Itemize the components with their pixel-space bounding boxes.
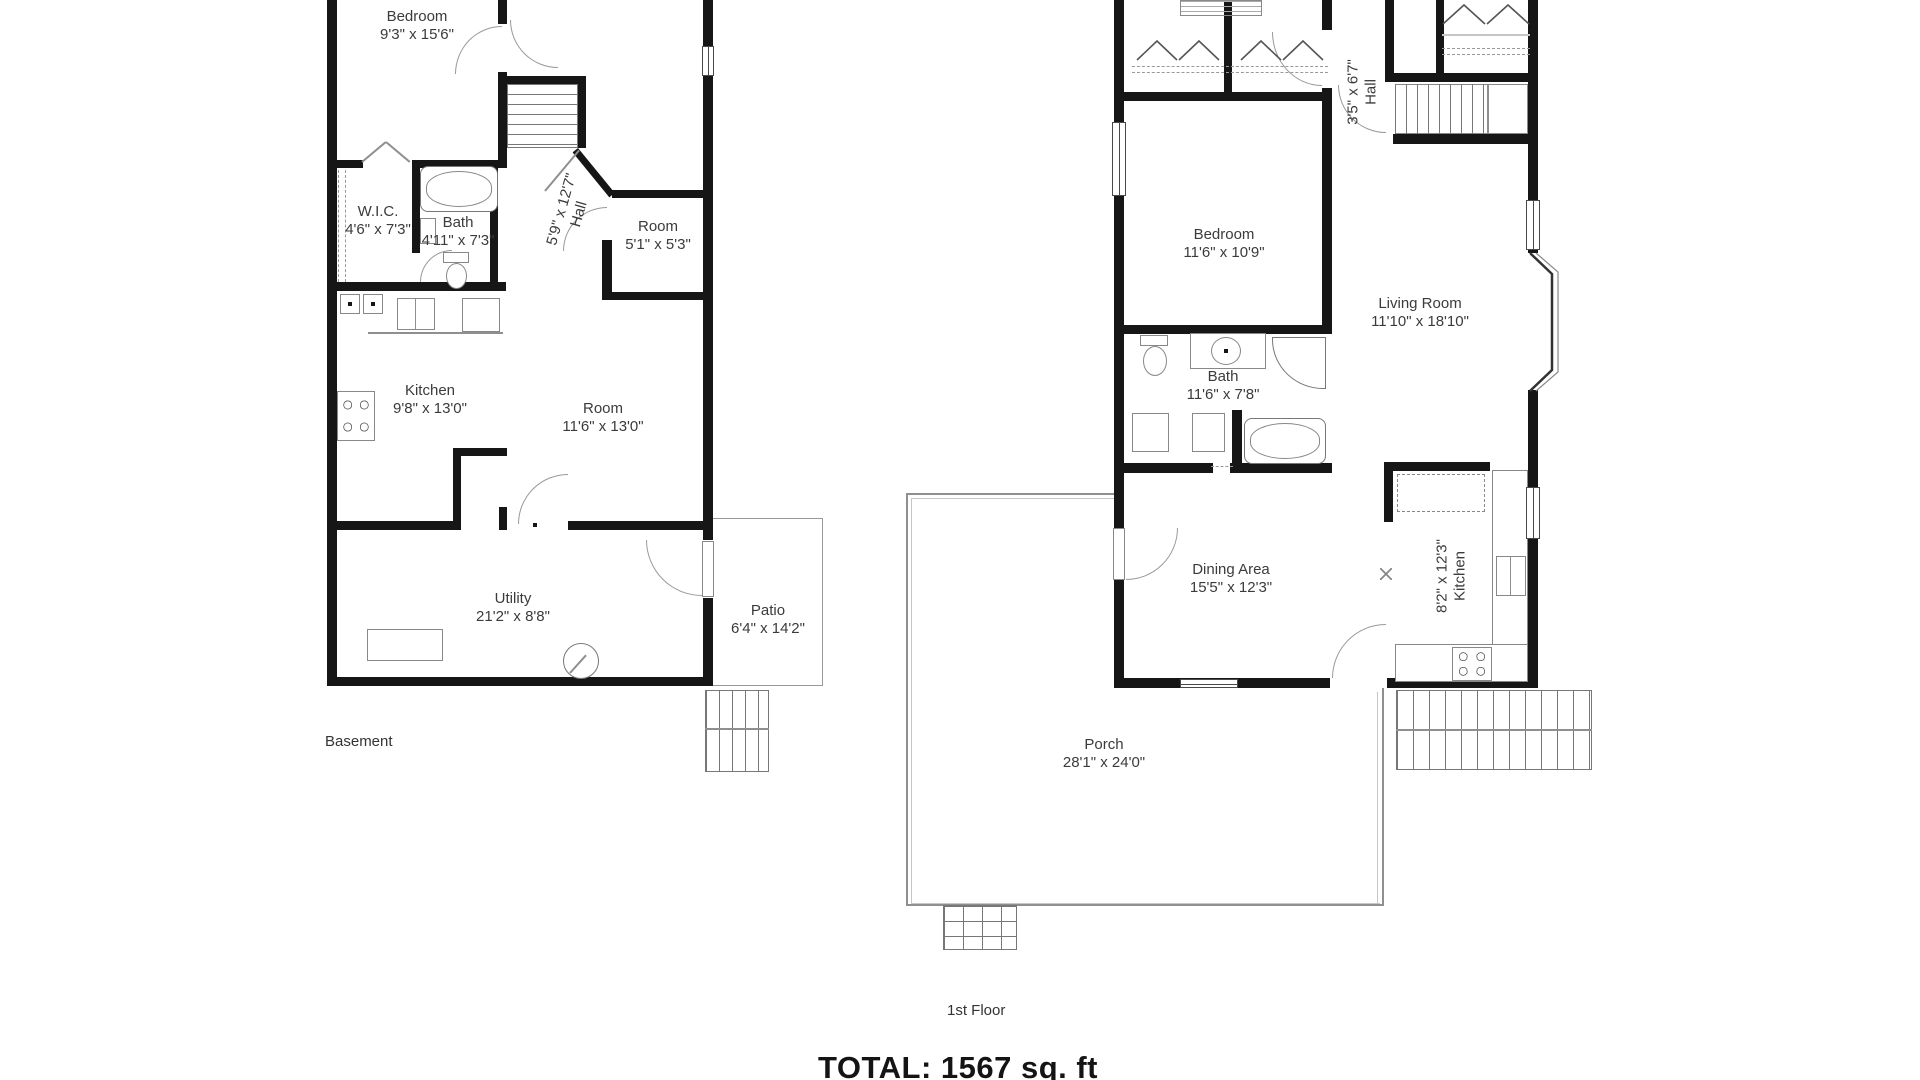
wall: [1114, 580, 1124, 688]
wall: [412, 168, 420, 253]
wall: [1114, 0, 1124, 528]
room-label: Bedroom9'3" x 15'6": [380, 8, 454, 45]
wall: [1322, 88, 1332, 334]
wall: [1384, 462, 1393, 522]
wall: [1322, 0, 1332, 30]
window: [1526, 487, 1540, 539]
wall: [327, 282, 506, 291]
kitchen-cabinet: [1397, 474, 1485, 512]
porch-edge: [1382, 688, 1384, 906]
porch-inner-edge: [1377, 692, 1378, 904]
room-label: Bedroom11'6" x 10'9": [1183, 226, 1264, 263]
wall: [453, 448, 507, 456]
pocket-door: [1211, 466, 1233, 468]
closet-rod: [1132, 66, 1328, 73]
room-label: Utility21'2" x 8'8": [476, 590, 550, 627]
wall: [1230, 463, 1332, 473]
wall: [1436, 73, 1538, 82]
wall: [612, 190, 703, 198]
door-arc: [1332, 624, 1386, 678]
door-arc: [518, 474, 568, 524]
closet-rod: [1442, 48, 1530, 55]
stairs-landing-line: [1487, 84, 1489, 134]
bathtub-basin: [1250, 423, 1320, 459]
room-label: Bath11'6" x 7'8": [1187, 368, 1260, 405]
switch-mark: [1380, 568, 1392, 580]
floor-label-basement: Basement: [325, 733, 393, 750]
wall-mark: [641, 523, 645, 527]
toilet-tank: [1140, 335, 1168, 346]
door-arc: [510, 20, 558, 68]
wall: [1384, 462, 1490, 471]
door-arc: [646, 540, 702, 596]
door-arc: [455, 26, 502, 74]
cutoff-cabinet: [1180, 0, 1262, 16]
wall-mark: [533, 523, 537, 527]
room-label: Living Room11'10" x 18'10": [1371, 295, 1469, 332]
wall: [1528, 390, 1538, 688]
bay-window: [1528, 248, 1562, 396]
wall-mark: [1326, 160, 1330, 164]
wall: [1385, 73, 1440, 82]
wall: [453, 448, 461, 530]
room-label: Kitchen9'8" x 13'0": [393, 382, 467, 419]
door-arc: [1126, 528, 1178, 580]
first-floor-stairs: [1395, 84, 1487, 134]
wall: [499, 507, 507, 530]
stove-icon: [1452, 647, 1492, 681]
wall: [327, 160, 363, 168]
total-area-label: TOTAL: 1567 sq. ft: [818, 1050, 1098, 1080]
wardrobe-zigzag-icon: [1134, 38, 1222, 62]
wardrobe-zigzag-icon: [1440, 2, 1532, 26]
appliance-knob: [371, 302, 375, 306]
porch-inner-edge: [911, 498, 1114, 499]
room-label: Porch28'1" x 24'0": [1063, 736, 1145, 773]
wall: [503, 76, 578, 84]
toilet-icon: [1143, 346, 1167, 376]
closet-door-chevron: [361, 141, 386, 162]
wall: [602, 292, 703, 300]
dryer-icon: [1192, 413, 1225, 452]
utility-bench: [367, 629, 443, 661]
window: [1112, 122, 1126, 196]
room-label: Room5'1" x 5'3": [625, 218, 691, 255]
front-door: [1113, 528, 1125, 580]
closet-shelf: [1442, 34, 1530, 36]
toilet-icon: [446, 263, 467, 289]
room-label: Bath4'11" x 7'3": [422, 214, 495, 251]
wall: [703, 0, 713, 540]
fridge-icon: [462, 298, 500, 332]
floor-label-1st-floor: 1st Floor: [947, 1002, 1005, 1019]
bathtub-basin: [426, 171, 492, 207]
wardrobe-zigzag-icon: [1238, 38, 1326, 62]
window: [1180, 679, 1238, 688]
toilet-tank: [443, 252, 469, 263]
stove-icon: [337, 391, 375, 441]
wall: [703, 598, 713, 686]
sink-drain: [1224, 349, 1228, 353]
floor-plan-image: Bedroom9'3" x 15'6" W.I.C.4'6" x 7'3" Ba…: [0, 0, 1920, 1080]
wall: [327, 677, 713, 686]
wall: [498, 72, 507, 168]
wall: [1232, 410, 1242, 470]
basement-stairs: [507, 84, 578, 148]
porch-steps: [943, 905, 1017, 950]
porch-inner-edge: [911, 903, 1380, 904]
appliance-knob: [348, 302, 352, 306]
room-label: 8'2" x 12'3"Kitchen: [1434, 539, 1471, 613]
wall-mark: [560, 77, 564, 81]
room-label: 3'5" x 6'7"Hall: [1345, 59, 1382, 125]
counter-line: [368, 332, 503, 334]
kitchen-sink-icon: [397, 298, 435, 330]
sink-divider: [415, 299, 416, 329]
patio-steps-rail: [705, 728, 769, 730]
room-label: Dining Area15'5" x 12'3": [1190, 561, 1272, 598]
kitchen-sink-icon: [1496, 556, 1526, 596]
wall: [498, 0, 507, 24]
porch-edge: [906, 493, 908, 906]
wall-mark: [1420, 137, 1424, 141]
wall: [578, 76, 586, 148]
wall: [1385, 0, 1394, 75]
wall: [327, 521, 453, 530]
window: [702, 46, 714, 76]
shower-icon: [1272, 337, 1326, 389]
washer-icon: [1132, 413, 1169, 452]
porch-edge: [906, 493, 1114, 495]
wall-mark: [1240, 328, 1244, 332]
wall: [1124, 92, 1330, 101]
porch-inner-edge: [911, 498, 912, 904]
wall: [1124, 463, 1213, 473]
room-label: Patio6'4" x 14'2": [731, 602, 805, 639]
closet-door-chevron: [385, 141, 410, 162]
room-label: W.I.C.4'6" x 7'3": [345, 203, 411, 240]
wall: [327, 0, 337, 686]
patio-steps: [705, 690, 769, 772]
window: [1526, 200, 1540, 250]
deck-stairs-rail: [1396, 729, 1592, 731]
sink-divider: [1510, 557, 1511, 595]
room-label: Room11'6" x 13'0": [562, 400, 643, 437]
wall: [1393, 134, 1538, 144]
